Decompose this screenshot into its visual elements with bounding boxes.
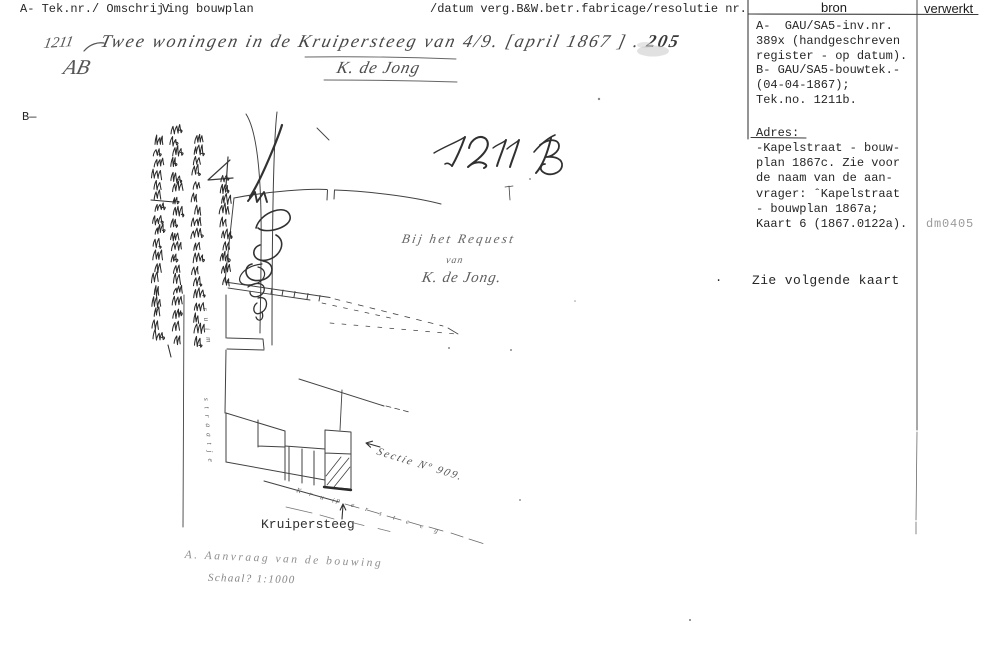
svg-text:s t r a a t j e: s t r a a t j e xyxy=(202,398,216,465)
svg-text:p e r s t e e g: p e r s t e e g xyxy=(334,496,443,536)
